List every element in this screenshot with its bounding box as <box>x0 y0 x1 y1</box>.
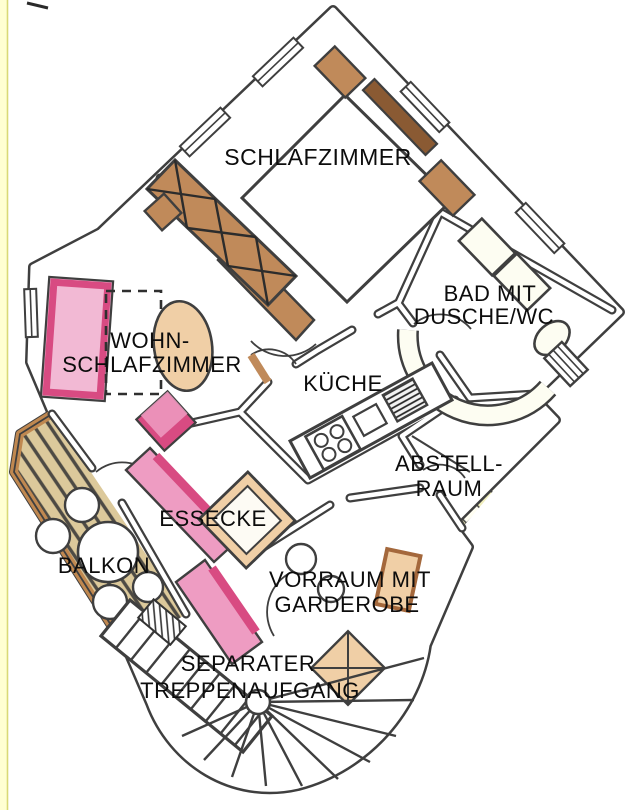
window <box>24 289 38 337</box>
room-label-bad-line1: BAD MIT <box>444 281 537 306</box>
room-label-wohn-line2: SCHLAFZIMMER <box>62 352 242 377</box>
room-label-essecke: ESSECKE <box>159 506 266 531</box>
page-margin-stripe <box>0 0 7 810</box>
pen-mark <box>27 3 48 8</box>
room-label-abstellraum-line1: ABSTELL- <box>395 451 503 476</box>
room-label-abstellraum-line2: RAUM <box>416 476 483 501</box>
room-label-schlafzimmer: SCHLAFZIMMER <box>224 144 411 170</box>
floor-plan-canvas: SCHLAFZIMMER BAD MIT DUSCHE/WC WOHN- SCH… <box>0 0 640 810</box>
room-label-kueche: KÜCHE <box>303 371 383 396</box>
room-label-wohn-line1: WOHN- <box>110 328 189 353</box>
room-label-balkon: BALKON <box>58 553 150 578</box>
floor-plan-page: SCHLAFZIMMER BAD MIT DUSCHE/WC WOHN- SCH… <box>0 0 640 810</box>
sofa-bed <box>41 277 113 401</box>
room-label-bad-line2: DUSCHE/WC <box>414 304 554 329</box>
room-label-vorraum-line1: VORRAUM MIT <box>269 567 431 592</box>
room-label-treppe-line1: SEPARATER <box>181 651 316 676</box>
room-label-treppe-line2: TREPPENAUFGANG <box>140 678 360 703</box>
balcony-chair <box>36 519 70 553</box>
balcony-chair <box>65 488 99 522</box>
room-label-vorraum-line2: GARDEROBE <box>274 592 419 617</box>
